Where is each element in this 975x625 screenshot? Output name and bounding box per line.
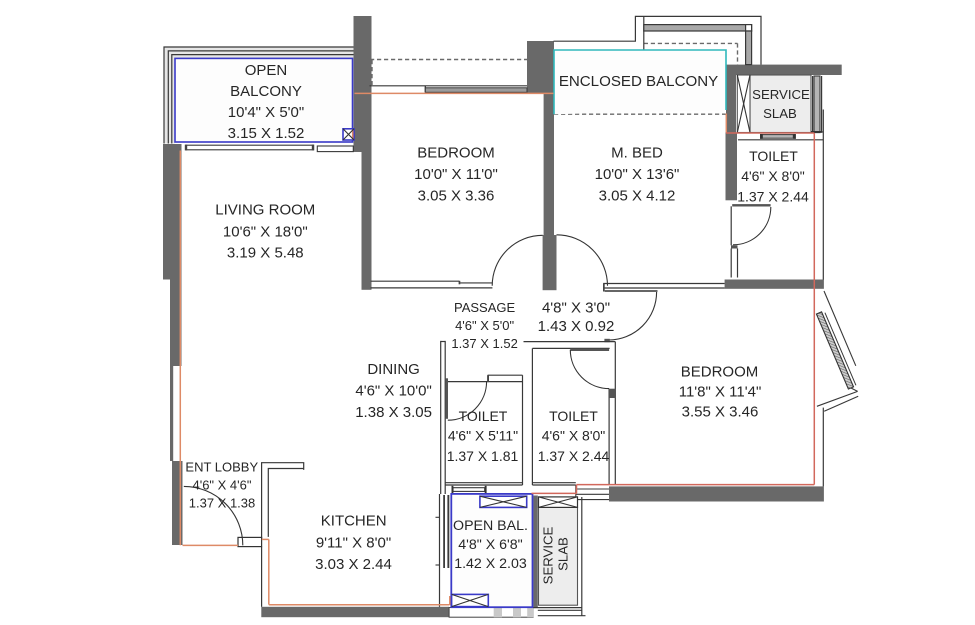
- svg-text:LIVING ROOM: LIVING ROOM: [215, 202, 315, 219]
- svg-text:TOILET: TOILET: [549, 408, 598, 424]
- svg-text:BEDROOM: BEDROOM: [681, 363, 759, 380]
- svg-text:3.03 X 2.44: 3.03 X 2.44: [315, 556, 392, 573]
- svg-text:10'0" X 13'6": 10'0" X 13'6": [595, 166, 680, 183]
- svg-text:4'6" X 4'6": 4'6" X 4'6": [192, 477, 251, 492]
- svg-text:OPEN BAL.: OPEN BAL.: [453, 518, 528, 534]
- svg-text:1.37 X 2.44: 1.37 X 2.44: [737, 188, 809, 204]
- svg-text:BALCONY: BALCONY: [230, 83, 302, 100]
- svg-text:1.38 X 3.05: 1.38 X 3.05: [355, 404, 432, 421]
- svg-text:TOILET: TOILET: [459, 408, 508, 424]
- svg-text:SERVICE: SERVICE: [540, 526, 555, 584]
- svg-text:4'6" X 8'0": 4'6" X 8'0": [741, 168, 805, 184]
- svg-text:4'6" X 8'0": 4'6" X 8'0": [542, 428, 606, 444]
- svg-text:1.37 X 2.44: 1.37 X 2.44: [538, 448, 610, 464]
- svg-text:SLAB: SLAB: [556, 537, 571, 571]
- svg-text:4'6" X 10'0": 4'6" X 10'0": [355, 383, 431, 400]
- svg-text:3.05 X 4.12: 3.05 X 4.12: [599, 187, 676, 204]
- svg-text:3.05 X 3.36: 3.05 X 3.36: [418, 187, 495, 204]
- svg-text:1.37 X 1.38: 1.37 X 1.38: [189, 495, 256, 510]
- svg-text:9'11" X 8'0": 9'11" X 8'0": [316, 535, 391, 552]
- svg-text:PASSAGE: PASSAGE: [454, 300, 516, 315]
- svg-text:3.15 X 1.52: 3.15 X 1.52: [228, 125, 305, 142]
- svg-text:3.19 X 5.48: 3.19 X 5.48: [227, 245, 304, 262]
- svg-text:ENCLOSED BALCONY: ENCLOSED BALCONY: [559, 73, 718, 90]
- svg-text:4'6" X 5'0": 4'6" X 5'0": [455, 318, 514, 333]
- svg-text:1.42 X 2.03: 1.42 X 2.03: [454, 556, 527, 572]
- svg-text:SLAB: SLAB: [763, 106, 797, 121]
- svg-text:3.55 X 3.46: 3.55 X 3.46: [682, 404, 759, 421]
- svg-text:1.43 X 0.92: 1.43 X 0.92: [538, 318, 615, 335]
- svg-text:DINING: DINING: [367, 361, 420, 378]
- svg-text:KITCHEN: KITCHEN: [321, 513, 387, 530]
- svg-text:11'8" X 11'4": 11'8" X 11'4": [679, 383, 762, 400]
- svg-text:SERVICE: SERVICE: [752, 87, 810, 102]
- svg-text:ENT LOBBY: ENT LOBBY: [185, 459, 258, 474]
- svg-text:1.37 X 1.81: 1.37 X 1.81: [447, 448, 519, 464]
- svg-text:OPEN: OPEN: [245, 62, 288, 79]
- svg-text:TOILET: TOILET: [749, 148, 798, 164]
- svg-text:10'0" X 11'0": 10'0" X 11'0": [414, 166, 498, 183]
- svg-text:4'8" X 3'0": 4'8" X 3'0": [542, 299, 610, 316]
- svg-text:10'6" X 18'0": 10'6" X 18'0": [223, 224, 308, 241]
- svg-text:1.37 X 1.52: 1.37 X 1.52: [451, 336, 518, 351]
- svg-text:10'4" X 5'0": 10'4" X 5'0": [228, 104, 304, 121]
- svg-text:4'6" X 5'11": 4'6" X 5'11": [448, 428, 518, 444]
- svg-text:4'8" X 6'8": 4'8" X 6'8": [458, 537, 522, 553]
- svg-text:BEDROOM: BEDROOM: [417, 144, 495, 161]
- svg-text:M. BED: M. BED: [611, 144, 663, 161]
